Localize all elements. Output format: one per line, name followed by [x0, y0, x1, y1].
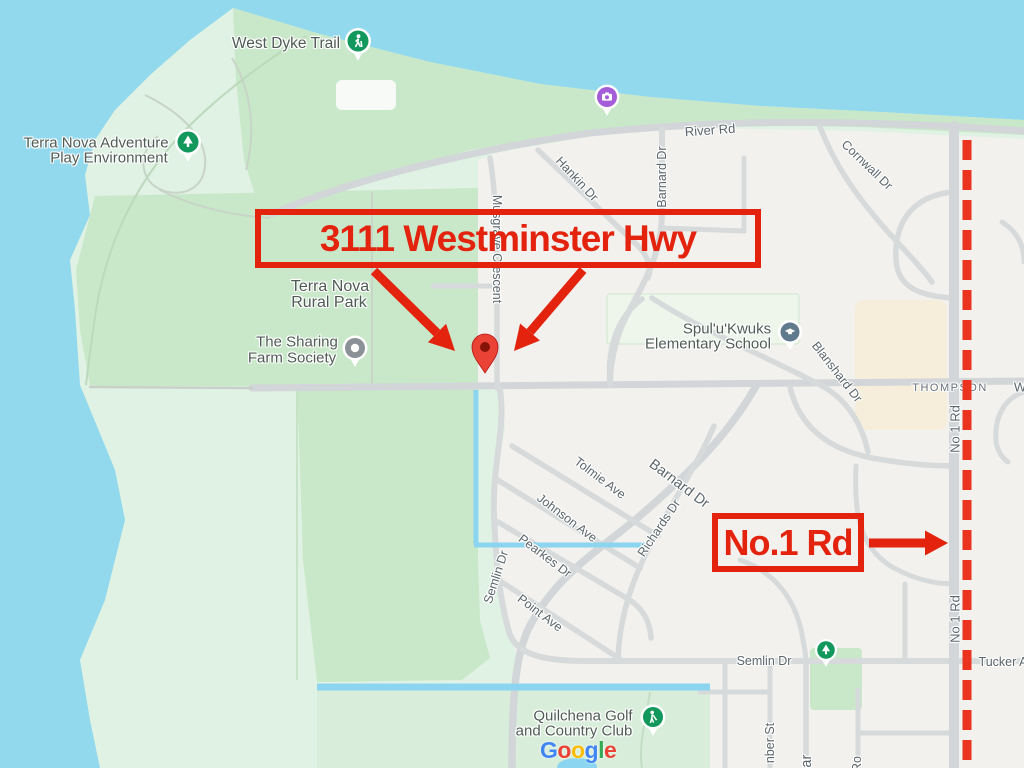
map-canvas[interactable] [0, 0, 1024, 768]
address-annotation-box: 3111 Westminster Hwy [255, 209, 761, 268]
google-letter: o [571, 737, 585, 763]
google-logo[interactable]: Google [540, 737, 616, 764]
map-viewport[interactable]: River Rd Cornwall Dr Hankin Dr Barnard D… [0, 0, 1024, 768]
google-letter: G [540, 737, 557, 763]
road-annotation-box: No.1 Rd [712, 513, 864, 572]
commercial-area [855, 300, 947, 430]
google-letter: o [557, 737, 571, 763]
google-letter: e [604, 737, 616, 763]
address-annotation-label: 3111 Westminster Hwy [320, 218, 696, 260]
road-annotation-label: No.1 Rd [723, 522, 852, 564]
google-letter: g [585, 737, 599, 763]
